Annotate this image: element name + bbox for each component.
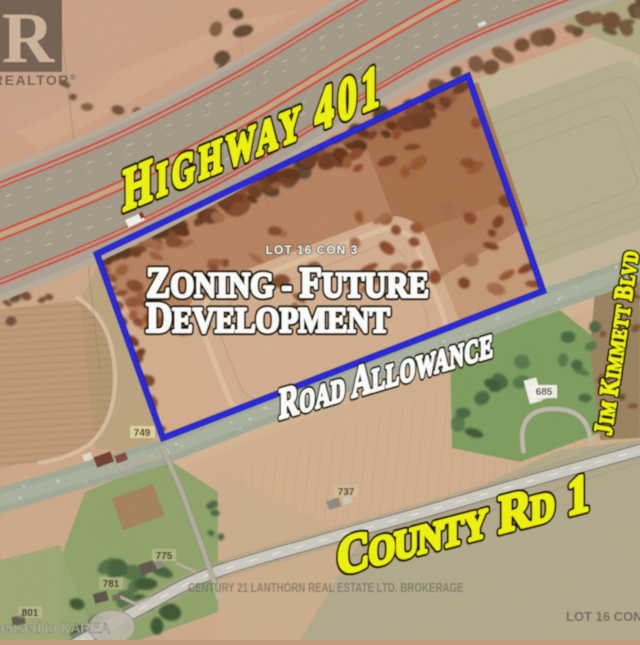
svg-text:801: 801 xyxy=(22,608,39,619)
svg-text:censed to KAREA: censed to KAREA xyxy=(0,621,110,637)
svg-text:R: R xyxy=(2,0,55,78)
svg-text:CENTURY 21 LANTHORN REAL ESTAT: CENTURY 21 LANTHORN REAL ESTATE LTD. BRO… xyxy=(188,582,464,595)
svg-text:REALTOR®: REALTOR® xyxy=(0,72,77,88)
svg-text:DEVELOPMENT: DEVELOPMENT xyxy=(146,293,390,341)
svg-text:685: 685 xyxy=(536,387,553,398)
svg-text:749: 749 xyxy=(134,428,151,439)
svg-text:ZONING - FUTURE: ZONING - FUTURE xyxy=(146,258,429,306)
svg-text:LOT 16 CON: LOT 16 CON xyxy=(566,609,640,624)
svg-text:LOT 16 CON 3: LOT 16 CON 3 xyxy=(266,243,359,257)
svg-text:775: 775 xyxy=(156,551,173,562)
svg-text:737: 737 xyxy=(338,487,355,498)
svg-text:781: 781 xyxy=(103,579,120,590)
